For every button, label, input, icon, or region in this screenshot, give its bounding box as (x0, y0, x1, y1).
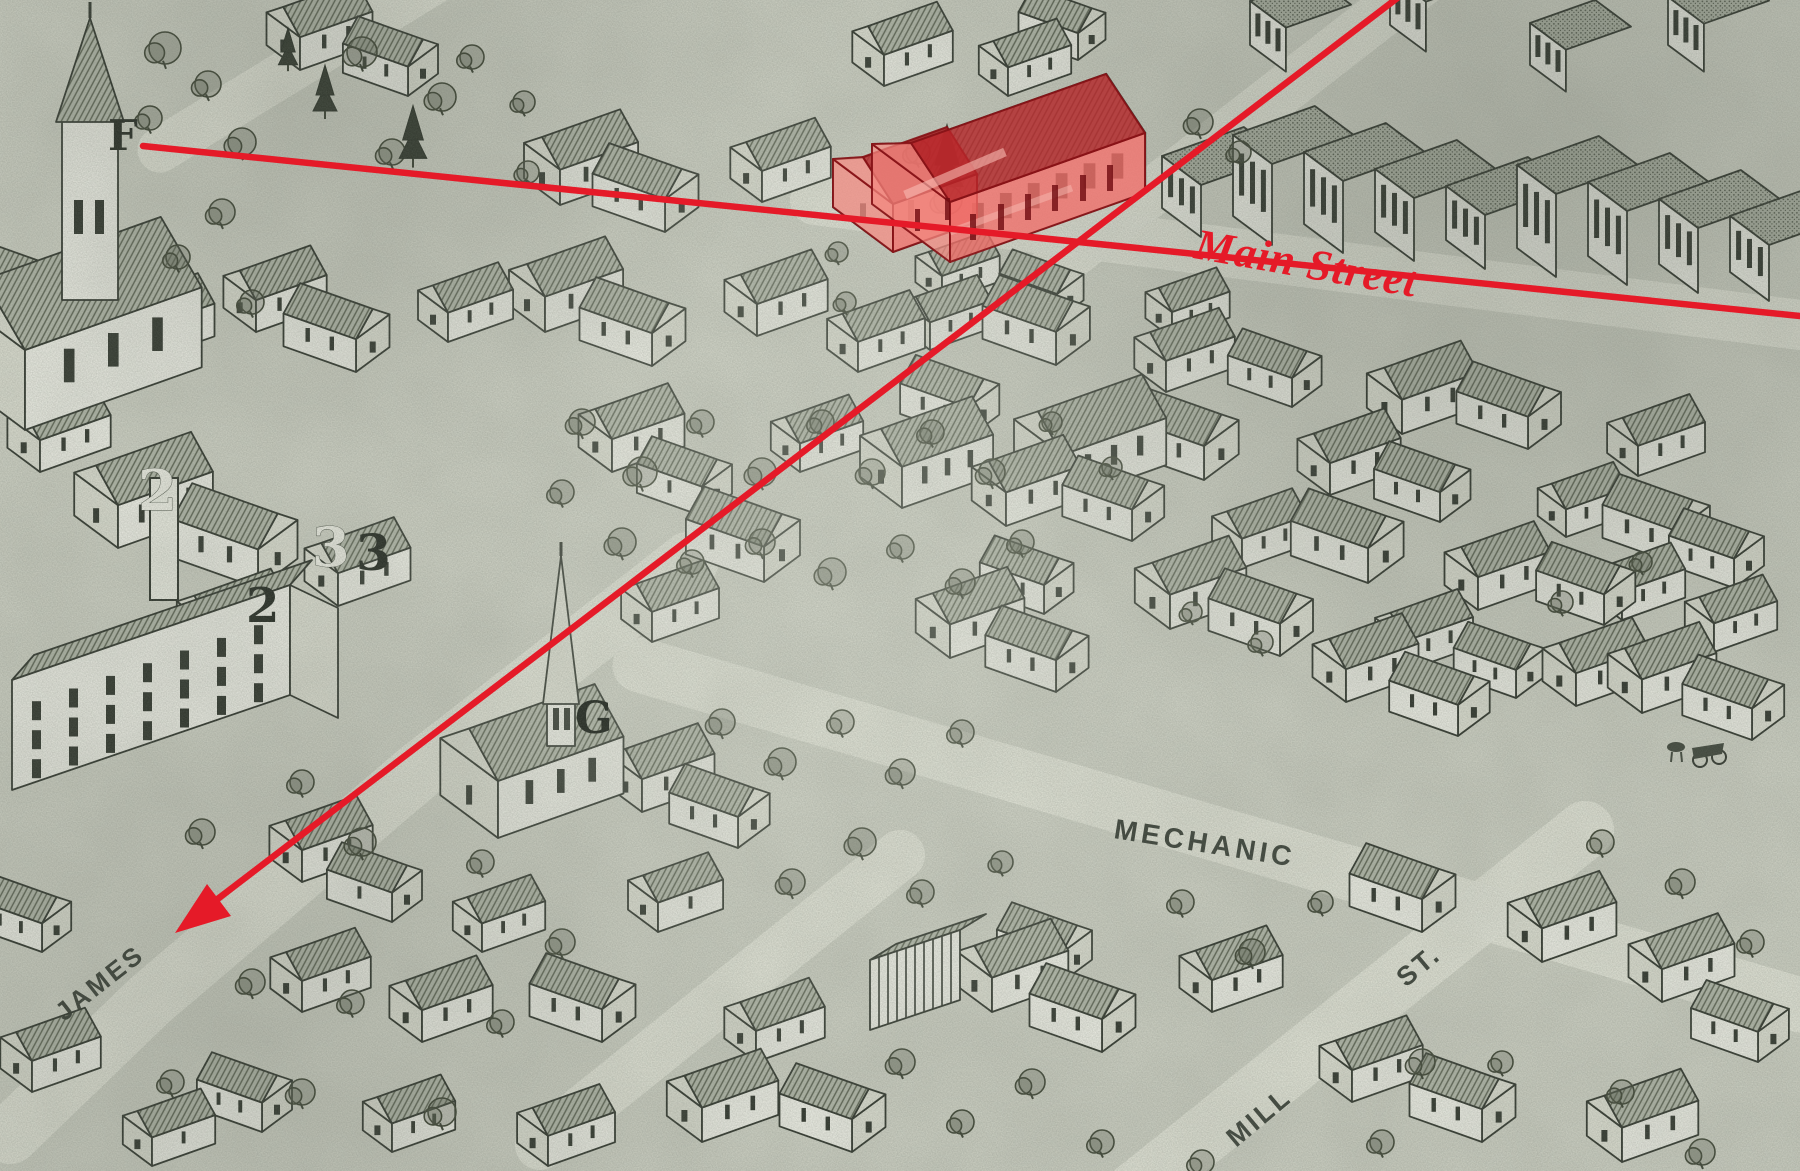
map-canvas: F G 2 3 3 2 MECHANIC JAMES MILL ST. (0, 0, 1800, 1171)
panoramic-map: F G 2 3 3 2 MECHANIC JAMES MILL ST. (0, 0, 1800, 1171)
